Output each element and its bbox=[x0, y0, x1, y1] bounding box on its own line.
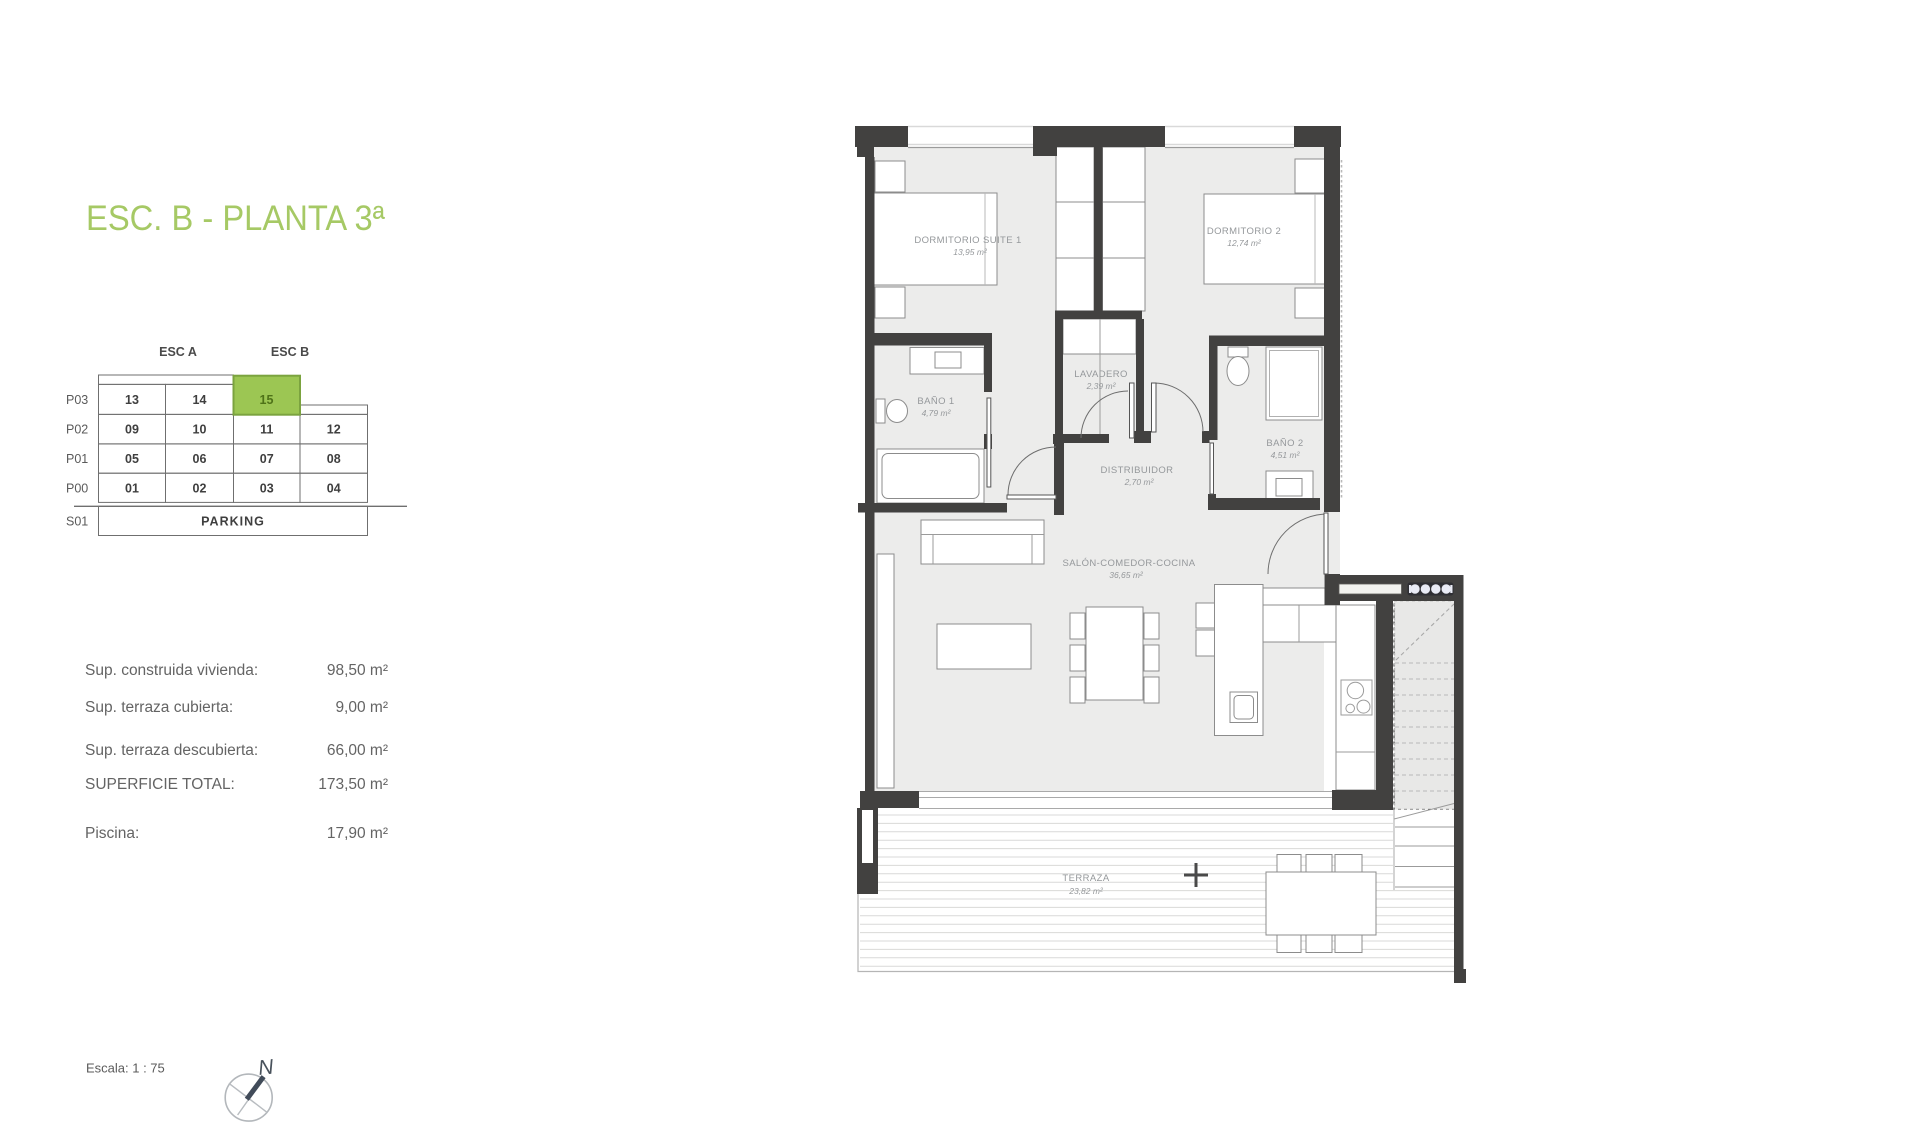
svg-text:36,65 m²: 36,65 m² bbox=[1109, 570, 1144, 580]
svg-text:17,90 m²: 17,90 m² bbox=[327, 825, 388, 842]
svg-text:DISTRIBUIDOR: DISTRIBUIDOR bbox=[1101, 465, 1174, 476]
svg-text:15: 15 bbox=[260, 393, 274, 407]
svg-text:BAÑO 2: BAÑO 2 bbox=[1266, 438, 1303, 449]
svg-text:07: 07 bbox=[260, 452, 274, 466]
svg-text:10: 10 bbox=[193, 423, 207, 437]
svg-text:23,82 m²: 23,82 m² bbox=[1068, 886, 1104, 896]
svg-text:Sup. construida vivienda:: Sup. construida vivienda: bbox=[85, 662, 258, 679]
svg-text:01: 01 bbox=[125, 481, 139, 495]
svg-text:TERRAZA: TERRAZA bbox=[1062, 873, 1109, 884]
svg-text:ESC. B - PLANTA 3ª: ESC. B - PLANTA 3ª bbox=[86, 199, 385, 238]
svg-text:14: 14 bbox=[193, 393, 207, 407]
svg-text:2,70 m²: 2,70 m² bbox=[1124, 477, 1155, 487]
svg-text:13: 13 bbox=[125, 393, 139, 407]
svg-text:2,39 m²: 2,39 m² bbox=[1086, 381, 1117, 391]
svg-text:P02: P02 bbox=[66, 423, 88, 437]
svg-text:N: N bbox=[257, 1055, 275, 1080]
svg-text:SUPERFICIE TOTAL:: SUPERFICIE TOTAL: bbox=[85, 776, 235, 793]
svg-text:04: 04 bbox=[327, 481, 341, 495]
svg-text:P00: P00 bbox=[66, 481, 88, 495]
svg-text:DORMITORIO SUITE 1: DORMITORIO SUITE 1 bbox=[914, 235, 1021, 246]
svg-text:Sup. terraza cubierta:: Sup. terraza cubierta: bbox=[85, 699, 233, 716]
svg-text:08: 08 bbox=[327, 452, 341, 466]
svg-text:12,74 m²: 12,74 m² bbox=[1227, 238, 1262, 248]
svg-text:Piscina:: Piscina: bbox=[85, 825, 139, 842]
svg-text:4,51 m²: 4,51 m² bbox=[1271, 450, 1301, 460]
svg-text:LAVADERO: LAVADERO bbox=[1074, 369, 1128, 380]
svg-text:P01: P01 bbox=[66, 452, 88, 466]
svg-text:P03: P03 bbox=[66, 393, 88, 407]
svg-text:05: 05 bbox=[125, 452, 139, 466]
svg-text:PARKING: PARKING bbox=[201, 514, 265, 528]
svg-text:ESC A: ESC A bbox=[159, 345, 197, 359]
svg-text:11: 11 bbox=[260, 423, 273, 437]
svg-text:ESC B: ESC B bbox=[271, 345, 309, 359]
svg-text:98,50 m²: 98,50 m² bbox=[327, 662, 388, 679]
svg-text:BAÑO 1: BAÑO 1 bbox=[917, 396, 954, 407]
svg-text:02: 02 bbox=[193, 481, 207, 495]
svg-text:Sup. terraza descubierta:: Sup. terraza descubierta: bbox=[85, 742, 258, 759]
svg-text:DORMITORIO 2: DORMITORIO 2 bbox=[1207, 226, 1281, 237]
svg-text:06: 06 bbox=[193, 452, 207, 466]
svg-text:12: 12 bbox=[327, 423, 341, 437]
svg-text:03: 03 bbox=[260, 481, 274, 495]
svg-text:SALÓN-COMEDOR-COCINA: SALÓN-COMEDOR-COCINA bbox=[1062, 558, 1195, 569]
svg-text:66,00 m²: 66,00 m² bbox=[327, 742, 388, 759]
svg-text:Escala: 1 : 75: Escala: 1 : 75 bbox=[86, 1061, 165, 1076]
svg-text:S01: S01 bbox=[66, 514, 88, 528]
svg-text:173,50 m²: 173,50 m² bbox=[318, 776, 388, 793]
svg-text:09: 09 bbox=[125, 423, 139, 437]
svg-text:13,95 m²: 13,95 m² bbox=[953, 247, 988, 257]
svg-text:9,00 m²: 9,00 m² bbox=[335, 699, 388, 716]
svg-text:4,79 m²: 4,79 m² bbox=[922, 408, 952, 418]
